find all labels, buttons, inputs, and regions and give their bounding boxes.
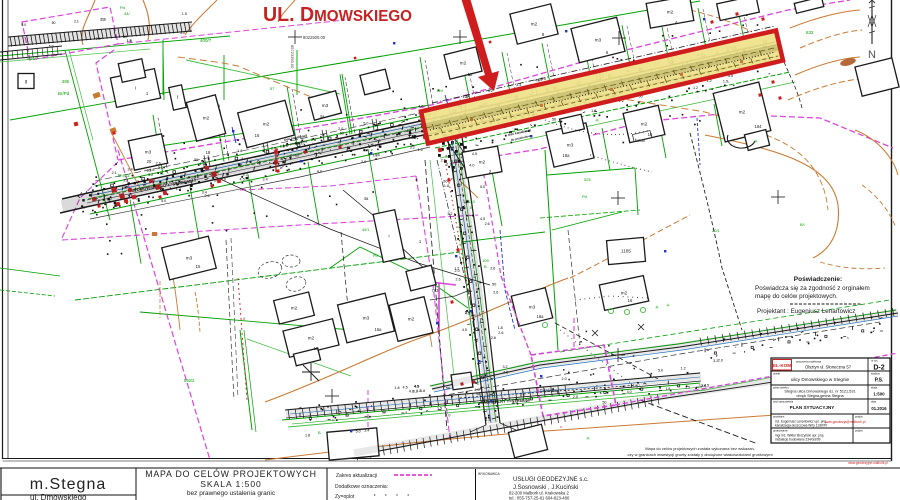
svg-text:395: 395 — [62, 79, 70, 84]
svg-text:1.2: 1.2 — [693, 86, 698, 90]
svg-text:50: 50 — [443, 179, 447, 183]
svg-text:UL. DMOWSKIEGO: UL. DMOWSKIEGO — [263, 4, 412, 26]
svg-text:m3: m3 — [595, 38, 602, 43]
svg-text:4a: 4a — [320, 114, 325, 119]
svg-text:m3: m3 — [322, 103, 329, 108]
svg-text:4.0: 4.0 — [469, 163, 474, 167]
svg-text:4.0: 4.0 — [627, 390, 632, 394]
svg-text:1.8: 1.8 — [665, 387, 670, 391]
svg-text:Olsztyn ul. Słoneczna 57: Olsztyn ul. Słoneczna 57 — [805, 365, 852, 370]
svg-text:3.2: 3.2 — [410, 145, 415, 149]
svg-text:5.0: 5.0 — [21, 23, 26, 27]
svg-text:opracowanie: opracowanie — [773, 429, 788, 433]
svg-text:✳: ✳ — [595, 118, 599, 124]
svg-text:5.0: 5.0 — [480, 185, 485, 189]
svg-text:3.2: 3.2 — [447, 212, 452, 216]
svg-text:instalacje budowlane 234/Gd/99: instalacje budowlane 234/Gd/99 — [775, 438, 821, 442]
svg-text:1185: 1185 — [621, 249, 631, 254]
svg-text:1.5: 1.5 — [723, 79, 728, 83]
svg-text:1.8: 1.8 — [394, 386, 399, 390]
svg-text:nr rys.: nr rys. — [871, 359, 878, 363]
svg-text:3.4: 3.4 — [516, 83, 521, 87]
svg-text:5.0: 5.0 — [49, 44, 54, 48]
svg-text:2.0: 2.0 — [562, 377, 567, 381]
svg-text:20: 20 — [147, 159, 152, 164]
svg-text:3.4: 3.4 — [263, 177, 268, 181]
svg-text:B: B — [470, 205, 473, 210]
svg-text:B: B — [318, 430, 321, 435]
svg-text:m2: m2 — [641, 122, 648, 127]
svg-text:2.6: 2.6 — [498, 331, 503, 335]
svg-text:18: 18 — [206, 150, 211, 155]
svg-text:8022500.00: 8022500.00 — [303, 35, 326, 40]
svg-text:obręb Stegna,gmina Stegna: obręb Stegna,gmina Stegna — [796, 394, 844, 398]
svg-text:1.8: 1.8 — [127, 39, 132, 43]
svg-text:czy w granicach inwestycji gru: czy w granicach inwestycji grunty został… — [628, 452, 773, 457]
svg-text:bez prawnego ustalenia granic: bez prawnego ustalenia granic — [187, 490, 276, 497]
svg-text:4.0: 4.0 — [317, 170, 322, 174]
svg-text:16a: 16a — [537, 314, 545, 319]
svg-text:50: 50 — [194, 158, 198, 162]
svg-text:mapę do celów projektowych.: mapę do celów projektowych. — [755, 293, 838, 300]
svg-text:✳: ✳ — [655, 305, 659, 311]
svg-text:4.0: 4.0 — [474, 388, 479, 392]
svg-text:44/: 44/ — [124, 11, 130, 16]
svg-text:2.6: 2.6 — [485, 222, 490, 226]
svg-text:4.5: 4.5 — [403, 385, 408, 389]
svg-text:Projektant : Eugeniusz Lenarto: Projektant : Eugeniusz Lenartowicz — [757, 308, 855, 315]
svg-text:www.geodezyjne.malbork.pl: www.geodezyjne.malbork.pl — [848, 461, 888, 465]
svg-text:m3: m3 — [529, 305, 536, 310]
svg-text:ulicy Dmowskiego w Stegnie: ulicy Dmowskiego w Stegnie — [791, 377, 850, 382]
svg-text:18: 18 — [314, 346, 319, 351]
svg-text:m2: m2 — [308, 336, 315, 341]
svg-text:beton: beton — [635, 138, 646, 143]
svg-text:B/l: B/l — [800, 223, 805, 227]
svg-text:projektant: projektant — [773, 415, 785, 419]
svg-text:4.5: 4.5 — [240, 177, 245, 181]
svg-text:B 402: B 402 — [118, 173, 130, 178]
svg-text:Zy=oplot: Zy=oplot — [335, 494, 355, 500]
svg-text:4.0: 4.0 — [221, 177, 226, 181]
svg-text:5.0: 5.0 — [465, 311, 470, 315]
svg-text:Mapa do celów projektowych zos: Mapa do celów projektowych została wykon… — [645, 446, 755, 451]
svg-text:Pd: Pd — [120, 5, 125, 10]
svg-text:1.5: 1.5 — [182, 12, 187, 16]
svg-text:1.5: 1.5 — [463, 95, 468, 99]
svg-text:podpis: podpis — [855, 415, 863, 419]
svg-text:m2: m2 — [531, 22, 538, 27]
svg-text:USŁUGI GEODEZYJNE s.c.: USŁUGI GEODEZYJNE s.c. — [513, 477, 589, 483]
svg-text:525: 525 — [584, 177, 591, 182]
svg-text:i: i — [388, 234, 389, 239]
svg-text:164: 164 — [755, 124, 763, 129]
svg-text:632: 632 — [806, 30, 814, 35]
svg-text:3.4: 3.4 — [158, 166, 163, 170]
svg-text:4.5: 4.5 — [480, 217, 485, 221]
svg-text:01.2016: 01.2016 — [871, 406, 887, 411]
svg-text:2.6: 2.6 — [490, 267, 495, 271]
svg-text:stadium: stadium — [871, 372, 880, 376]
svg-text:tytuł opracowania: tytuł opracowania — [773, 400, 794, 404]
svg-text:1.5: 1.5 — [685, 385, 690, 389]
svg-text:2.1: 2.1 — [445, 155, 450, 159]
svg-text:592/2: 592/2 — [184, 378, 195, 383]
svg-text:ul. Dmowskiego: ul. Dmowskiego — [30, 493, 87, 500]
svg-text:2.0: 2.0 — [573, 395, 578, 399]
svg-text:✳: ✳ — [666, 303, 670, 309]
svg-text:15: 15 — [196, 264, 201, 269]
svg-text:3.4: 3.4 — [128, 167, 133, 171]
svg-text:N: N — [868, 49, 876, 61]
svg-text:2.1: 2.1 — [123, 178, 128, 182]
svg-text:m2: m2 — [460, 61, 467, 66]
svg-text:1.2: 1.2 — [373, 153, 378, 157]
svg-text:4.5: 4.5 — [462, 328, 467, 332]
svg-text:504/7: 504/7 — [27, 56, 39, 61]
svg-text:3.2: 3.2 — [488, 89, 493, 93]
svg-text:m2: m2 — [203, 116, 210, 121]
svg-text:5.0: 5.0 — [363, 122, 368, 126]
svg-text:g: g — [25, 79, 28, 84]
svg-text:m3: m3 — [363, 316, 370, 321]
svg-text:16: 16 — [648, 132, 653, 137]
svg-text:4.0: 4.0 — [414, 384, 419, 388]
svg-text:50: 50 — [52, 21, 56, 25]
svg-text:1.5: 1.5 — [418, 148, 423, 152]
svg-text:Pd: Pd — [582, 194, 587, 199]
svg-text:1:500: 1:500 — [873, 392, 885, 397]
svg-text:m3: m3 — [186, 256, 193, 261]
svg-text:m2: m2 — [479, 160, 486, 165]
svg-text:1.8: 1.8 — [305, 434, 310, 438]
svg-text:2.1: 2.1 — [446, 162, 451, 166]
svg-text:5.0: 5.0 — [180, 31, 185, 35]
svg-text:2.6: 2.6 — [101, 18, 106, 22]
svg-text:1.5: 1.5 — [199, 162, 204, 166]
svg-text:skala: skala — [871, 386, 878, 390]
svg-text:4.0: 4.0 — [445, 414, 450, 418]
svg-text:50: 50 — [340, 132, 344, 136]
svg-text:1.8: 1.8 — [444, 184, 449, 188]
svg-text:4.0: 4.0 — [418, 105, 423, 109]
svg-text:Poświadczenie:: Poświadczenie: — [794, 276, 842, 283]
svg-text:16: 16 — [255, 133, 260, 138]
svg-text:4.5: 4.5 — [472, 152, 477, 156]
svg-text:m3: m3 — [145, 150, 152, 155]
svg-text:400/7: 400/7 — [200, 38, 212, 43]
svg-text:65723350.00: 65723350.00 — [290, 45, 295, 69]
svg-text:m2: m2 — [667, 10, 674, 15]
svg-text:D-2: D-2 — [873, 365, 884, 372]
svg-text:1.8: 1.8 — [149, 168, 154, 172]
svg-text:5.0: 5.0 — [411, 136, 416, 140]
svg-text:1.8: 1.8 — [498, 326, 503, 330]
svg-text:1.8: 1.8 — [311, 138, 316, 142]
svg-text:2.1: 2.1 — [112, 171, 117, 175]
svg-text:2.6: 2.6 — [493, 291, 498, 295]
svg-text:data: data — [871, 400, 877, 404]
svg-text:SKALA 1:500: SKALA 1:500 — [200, 479, 262, 489]
svg-text:Stegna ulica Dmowskiego dz. nr: Stegna ulica Dmowskiego dz. nr 5121,531 — [784, 390, 855, 394]
svg-text:podpis: podpis — [855, 429, 863, 433]
svg-text:✳: ✳ — [754, 139, 758, 145]
svg-text:15a: 15a — [375, 327, 383, 332]
svg-text:PLAN SYTUACYJNY: PLAN SYTUACYJNY — [790, 405, 835, 410]
svg-text:3.2: 3.2 — [413, 389, 418, 393]
svg-text:pracownia projektowa: pracownia projektowa — [796, 360, 822, 364]
svg-text:obiekt: obiekt — [773, 372, 780, 376]
svg-text:EL-KOM: EL-KOM — [773, 363, 791, 368]
svg-text:B: B — [484, 264, 487, 269]
svg-text:Br/Pd: Br/Pd — [58, 91, 70, 96]
svg-text:50: 50 — [552, 118, 556, 122]
svg-text:18a: 18a — [563, 153, 571, 158]
svg-text:1.5: 1.5 — [437, 406, 442, 410]
svg-text:2.6: 2.6 — [156, 161, 161, 165]
svg-text:10: 10 — [468, 72, 473, 77]
svg-text:3.4: 3.4 — [364, 429, 369, 433]
svg-text:109: 109 — [482, 258, 489, 263]
svg-text:P.S.: P.S. — [875, 378, 884, 384]
svg-text:49/1: 49/1 — [362, 228, 369, 232]
svg-text:2.1: 2.1 — [74, 20, 79, 24]
svg-text:1.2: 1.2 — [681, 367, 686, 371]
svg-text:m.Stegna: m.Stegna — [30, 476, 106, 493]
svg-text:5.0: 5.0 — [356, 429, 361, 433]
svg-text:2.6: 2.6 — [456, 277, 461, 281]
svg-text:793: 793 — [432, 288, 440, 293]
svg-text:Poświadcza się za zgodność z o: Poświadcza się za zgodność z orginałem — [755, 285, 870, 292]
svg-text:57: 57 — [270, 87, 274, 91]
svg-text:2.6: 2.6 — [204, 194, 209, 198]
svg-text:3.2: 3.2 — [243, 173, 248, 177]
svg-text:3.2: 3.2 — [148, 173, 153, 177]
svg-text:m2: m2 — [621, 291, 628, 296]
svg-text:4.0: 4.0 — [535, 79, 540, 83]
svg-text:I: I — [135, 86, 136, 91]
svg-text:kanalizacja deszczowa Wrty 11: kanalizacja deszczowa Wrty 11/87/Pr — [775, 424, 828, 428]
svg-text:Zakres aktualizacji: Zakres aktualizacji — [336, 473, 377, 479]
svg-text:1.8: 1.8 — [420, 389, 425, 393]
svg-text:5.0: 5.0 — [658, 369, 663, 373]
svg-text:m2: m2 — [263, 122, 270, 127]
svg-text:Dodatkowe oznaczenia:: Dodatkowe oznaczenia: — [335, 484, 388, 490]
svg-text:2.0: 2.0 — [338, 127, 343, 131]
svg-text:m3: m3 — [567, 143, 574, 148]
svg-text:123: 123 — [468, 199, 475, 204]
svg-text:16: 16 — [628, 298, 633, 303]
svg-text:B/d: B/d — [437, 89, 443, 93]
svg-text:www.geodezja@malbork.pl: www.geodezja@malbork.pl — [825, 420, 866, 424]
svg-text:2.0: 2.0 — [375, 144, 380, 148]
svg-text:MAPA DO CELÓW PROJEKTOWYCH: MAPA DO CELÓW PROJEKTOWYCH — [145, 469, 317, 479]
svg-text:tel.: 055-757-25-81 604-82: tel.: 055-757-25-81 604-823-480 — [509, 496, 570, 500]
svg-text:3.4: 3.4 — [202, 190, 207, 194]
svg-text:2.0: 2.0 — [718, 358, 723, 362]
svg-text:50: 50 — [492, 282, 496, 286]
svg-text:2.6: 2.6 — [491, 336, 496, 340]
svg-text:x: x — [560, 424, 562, 429]
svg-text:Pd: Pd — [373, 254, 378, 258]
svg-text:✳: ✳ — [586, 436, 590, 442]
svg-text:WYKONAWCA:: WYKONAWCA: — [478, 472, 500, 476]
svg-text:5.0: 5.0 — [161, 199, 166, 203]
svg-text:2.0: 2.0 — [361, 160, 366, 164]
svg-text:1.2: 1.2 — [176, 187, 181, 191]
svg-text:m2: m2 — [408, 317, 415, 322]
svg-text:4a: 4a — [364, 196, 369, 201]
svg-text:m2: m2 — [291, 306, 298, 311]
svg-text:1.2: 1.2 — [454, 266, 459, 270]
svg-text:1.8: 1.8 — [237, 149, 242, 153]
svg-text:m2: m2 — [739, 110, 746, 115]
